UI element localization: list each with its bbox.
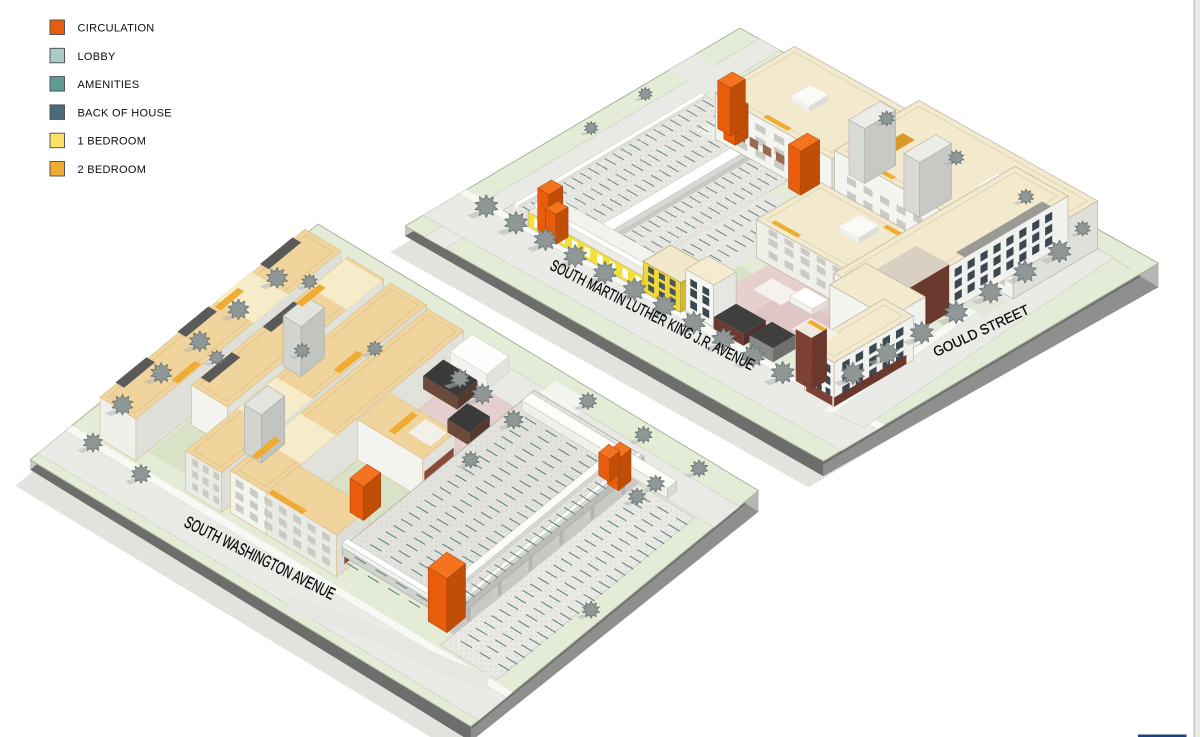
svg-text:BACK OF HOUSE: BACK OF HOUSE — [78, 107, 172, 119]
svg-text:CIRCULATION: CIRCULATION — [78, 23, 155, 35]
svg-text:2 BEDROOM: 2 BEDROOM — [78, 164, 147, 176]
svg-text:1 BEDROOM: 1 BEDROOM — [78, 136, 147, 148]
svg-text:AMENITIES: AMENITIES — [78, 79, 140, 91]
svg-text:LOBBY: LOBBY — [78, 51, 117, 63]
